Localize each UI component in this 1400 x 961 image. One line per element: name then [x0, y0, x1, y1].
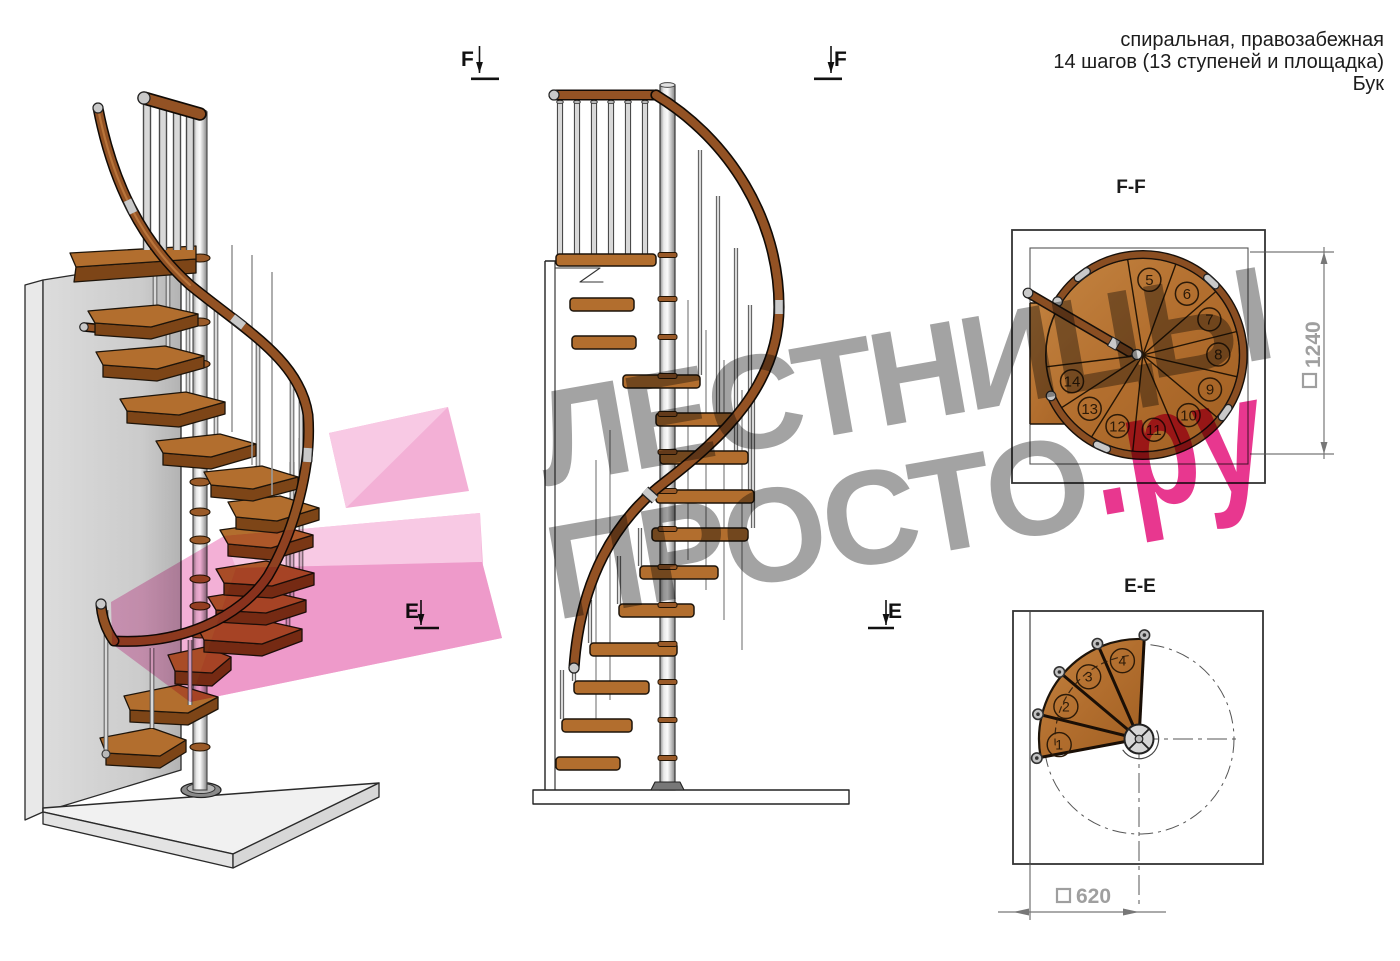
- svg-text:.ру: .ру: [1073, 338, 1279, 551]
- svg-text:1240: 1240: [1302, 321, 1325, 368]
- svg-text:2: 2: [1062, 698, 1070, 714]
- svg-text:4: 4: [1119, 653, 1127, 669]
- svg-text:E: E: [888, 600, 902, 623]
- svg-text:1: 1: [1055, 736, 1063, 752]
- svg-text:спиральная, правозабежная: спиральная, правозабежная: [1120, 29, 1384, 51]
- svg-text:F: F: [834, 48, 847, 71]
- svg-text:3: 3: [1085, 669, 1093, 685]
- svg-text:F-F: F-F: [1116, 177, 1146, 198]
- svg-text:Бук: Бук: [1353, 73, 1385, 95]
- svg-text:14 шагов (13 ступеней и площад: 14 шагов (13 ступеней и площадка): [1053, 51, 1384, 73]
- svg-text:F: F: [461, 48, 474, 71]
- svg-text:620: 620: [1076, 885, 1111, 908]
- svg-text:E-E: E-E: [1124, 576, 1156, 597]
